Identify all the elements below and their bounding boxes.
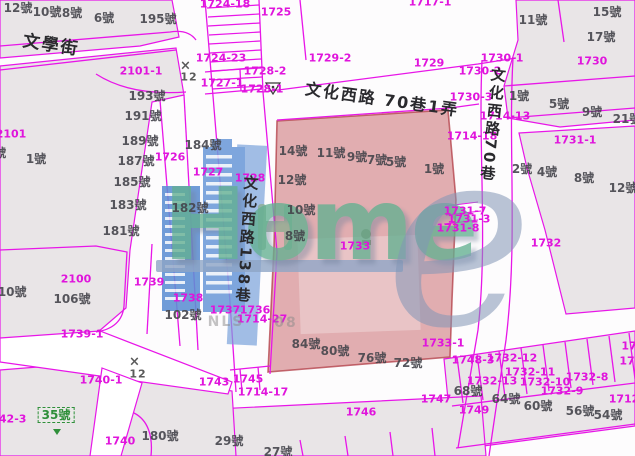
parcel-number-label: 1732-9 <box>541 386 584 397</box>
parcel-number-label: 1724-23 <box>196 53 247 64</box>
house-number-label: 181號 <box>102 225 139 237</box>
parcel-number-label: 1738 <box>173 293 204 304</box>
house-number-label: 10號 <box>287 204 316 216</box>
house-number-label: 1號 <box>26 153 46 165</box>
house-number-green-label: 35號 <box>38 407 75 423</box>
house-number-label: 2號 <box>512 163 532 175</box>
house-number-label: 10號 <box>33 6 62 18</box>
house-number-label: 9號 <box>347 151 367 163</box>
parcel-number-label: 1712 <box>609 394 635 405</box>
house-number-label: 11號 <box>519 14 548 26</box>
parcel-number-label: 1742-3 <box>0 414 26 425</box>
house-number-label: 187號 <box>117 155 154 167</box>
house-number-label: 184號 <box>184 139 221 151</box>
parcel-number-label: 1717-1 <box>409 0 452 8</box>
street-name-label: 文化西路138巷 <box>234 174 258 305</box>
house-number-label: 14號 <box>279 145 308 157</box>
house-number-label: 5號 <box>386 156 406 168</box>
parcel-number-label: 2101-1 <box>120 66 163 77</box>
parcel-number-label: 1747 <box>421 394 452 405</box>
house-number-label: 183號 <box>109 199 146 211</box>
house-number-label: 54號 <box>594 409 623 421</box>
house-number-label: 6號 <box>94 12 114 24</box>
house-number-label: 110號 <box>0 286 27 298</box>
parcel-number-label: 1739-1 <box>61 329 104 340</box>
parcel-number-label: 1728-2 <box>244 66 287 77</box>
house-number-label: 189號 <box>121 135 158 147</box>
house-number-label: 29號 <box>215 435 244 447</box>
house-number-label: 17號 <box>587 31 616 43</box>
parcel-number-label: 1730 <box>577 56 608 67</box>
house-number-label: 195號 <box>139 13 176 25</box>
house-number-label: 106號 <box>53 293 90 305</box>
parcel-number-label: 1740 <box>105 436 136 447</box>
house-number-label: 180號 <box>141 430 178 442</box>
parcel-number-label: 1732-8 <box>566 372 609 383</box>
parcel-number-label: 1729-2 <box>309 53 352 64</box>
parcel-number-label: 1727 <box>193 167 224 178</box>
parcel-number-label: 1730-1 <box>481 53 524 64</box>
house-number-label: 185號 <box>113 176 150 188</box>
street-name-label: 文化西路 70巷1弄 <box>304 81 460 118</box>
house-number-label: 182號 <box>171 202 208 214</box>
parcel-number-label: 1731-1 <box>554 135 597 146</box>
house-number-label: 8號 <box>285 230 305 242</box>
parcel-number-label: 1732 <box>531 238 562 249</box>
parcel-number-label: 1725 <box>261 7 292 18</box>
house-number-label: 191號 <box>124 110 161 122</box>
house-number-label: 12號 <box>278 174 307 186</box>
cadastral-map-canvas[interactable]: Home e 1724-1817251724-231728-21727-1172… <box>0 0 635 456</box>
parcel-number-label: 1732-12 <box>487 353 538 364</box>
house-number-label: 12號 <box>609 182 635 194</box>
parcel-number-label: 1745 <box>233 374 264 385</box>
house-number-label: 7號 <box>367 154 387 166</box>
house-number-label: 8號 <box>574 172 594 184</box>
house-number-label: 68號 <box>454 385 483 397</box>
parcel-number-label: 2101 <box>0 129 26 140</box>
map-label-layer: 1724-1817251724-231728-21727-11728-12101… <box>0 0 635 456</box>
parcel-number-label: 2100 <box>61 274 92 285</box>
parcel-number-label: 1727-1 <box>201 78 244 89</box>
control-point-label: 12 <box>180 72 197 83</box>
house-number-label: 3號 <box>0 147 6 159</box>
parcel-number-label: 1714-17 <box>238 387 289 398</box>
house-number-label: 64號 <box>492 393 521 405</box>
nls-watermark-label: 08 <box>274 316 297 330</box>
house-number-label: 8號 <box>62 7 82 19</box>
house-number-label: 9號 <box>582 106 602 118</box>
parcel-number-label: 1726 <box>155 152 186 163</box>
parcel-number-label: 1729 <box>414 58 445 69</box>
parcel-number-label: 1739 <box>134 277 165 288</box>
nls-watermark-label: NLS <box>208 315 245 329</box>
house-number-label: 193號 <box>128 90 165 102</box>
parcel-number-label: 1733 <box>340 241 371 252</box>
house-number-label: 56號 <box>566 405 595 417</box>
control-point-label: 12 <box>129 369 146 380</box>
house-number-label: 27號 <box>264 446 293 456</box>
parcel-number-label: 1743 <box>199 377 230 388</box>
street-name-label: 文學街 <box>22 33 81 59</box>
house-number-label: 15號 <box>593 6 622 18</box>
house-number-label: 84號 <box>292 338 321 350</box>
house-number-label: 80號 <box>321 345 350 357</box>
parcel-number-label: 1731-8 <box>437 223 480 234</box>
parcel-number-label: 1724-18 <box>200 0 251 10</box>
house-number-label: 4號 <box>537 166 557 178</box>
house-number-label: 11號 <box>317 147 346 159</box>
house-number-label: 102號 <box>164 309 201 321</box>
house-number-label: 1號 <box>424 163 444 175</box>
parcel-number-label: 1733-1 <box>422 338 465 349</box>
house-number-label: 12號 <box>4 2 33 14</box>
house-number-label: 21號 <box>613 113 635 125</box>
parcel-number-label: 1749 <box>459 405 490 416</box>
parcel-number-label: 1740-1 <box>80 375 123 386</box>
parcel-number-label: 17 <box>619 356 634 367</box>
house-number-label: 76號 <box>358 352 387 364</box>
parcel-number-label: 1746 <box>346 407 377 418</box>
house-number-label: 1號 <box>509 90 529 102</box>
house-number-label: 72號 <box>394 357 423 369</box>
house-number-label: 5號 <box>549 98 569 110</box>
parcel-number-label: 1728-1 <box>241 84 284 95</box>
parcel-number-label: 17 <box>621 341 635 352</box>
street-name-label: 文化西路70巷 <box>478 66 505 184</box>
house-number-label: 60號 <box>524 400 553 412</box>
